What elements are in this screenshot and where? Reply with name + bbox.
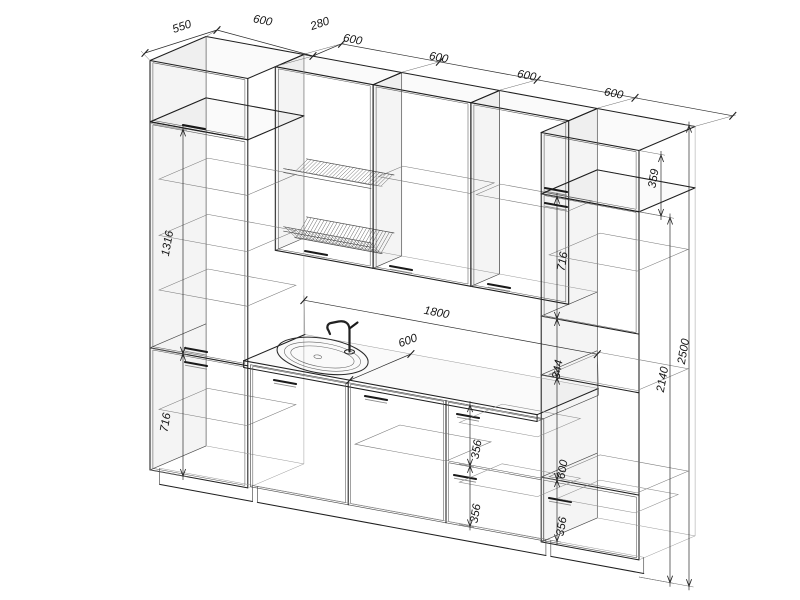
dim-label-total-height: 2500 xyxy=(676,337,693,366)
dim-label-wall-cabinet-1-width: 600 xyxy=(342,32,364,48)
dim-label-wall-cabinet-2-width: 600 xyxy=(428,50,450,66)
dim-label-drawer-height: 356 xyxy=(554,515,569,537)
sink-base-cabinet xyxy=(253,366,346,503)
dim-label-wall-cabinet-3-width: 600 xyxy=(516,68,538,84)
dim-label-tall-left-depth: 550 xyxy=(171,18,194,36)
dim-label-wall-cabinet-depth: 280 xyxy=(308,15,332,33)
dim-label-drawer-lower-height: 356 xyxy=(468,502,483,524)
dim-label-tall-left-width: 600 xyxy=(252,13,274,29)
dim-label-drawer-upper-height: 356 xyxy=(469,438,484,460)
dim-label-worktop-length: 1800 xyxy=(423,305,451,322)
tall-cabinet-right xyxy=(541,109,695,574)
dim-label-worktop-depth: 600 xyxy=(397,332,420,350)
kitchen-cabinet-technical-drawing: 5506002806006006006001316716716344600356… xyxy=(0,0,800,600)
drawing-canvas: 5506002806006006006001316716716344600356… xyxy=(0,0,800,600)
dim-label-tall-cabinet-height: 2140 xyxy=(655,365,672,394)
dimension-annotations: 5506002806006006006001316716716344600356… xyxy=(141,13,736,590)
dim-label-tall-right-width: 600 xyxy=(603,86,625,102)
